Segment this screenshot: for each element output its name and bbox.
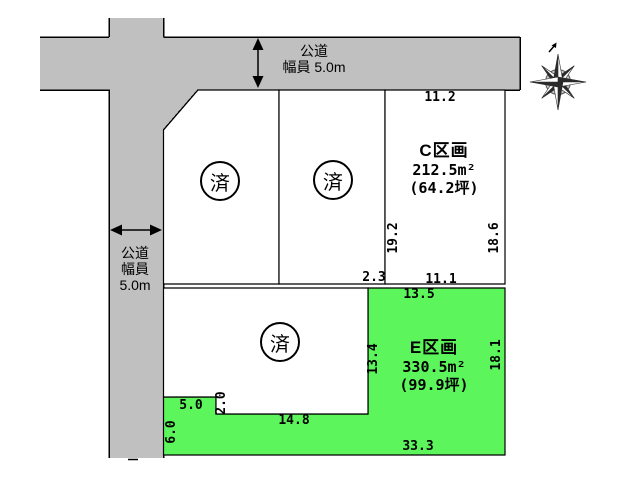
top-road-width: 幅員 5.0m bbox=[268, 59, 360, 75]
dim-e-top: 13.5 bbox=[397, 288, 441, 302]
dim-c-bottom: 11.1 bbox=[419, 273, 463, 287]
plot-c-label: C区画 212.5m² (64.2坪) bbox=[394, 141, 494, 197]
dim-e-left: 13.4 bbox=[367, 337, 381, 381]
dim-e-lower-left: 6.0 bbox=[165, 410, 179, 454]
sold-marker-plot-d: 済 bbox=[260, 322, 300, 362]
dim-d-bottom: 14.8 bbox=[272, 414, 316, 428]
dim-c-right: 18.6 bbox=[488, 216, 502, 260]
plot-c-area-m2: 212.5m² bbox=[394, 161, 494, 179]
dim-c-top: 11.2 bbox=[418, 91, 462, 105]
north-mark bbox=[549, 43, 557, 53]
plot-e-area-m2: 330.5m² bbox=[384, 358, 484, 376]
top-road-label: 公道 幅員 5.0m bbox=[268, 43, 360, 75]
plot-e-label: E区画 330.5m² (99.9坪) bbox=[384, 338, 484, 394]
compass-rose bbox=[530, 43, 586, 111]
plot-e-area-tsubo: (99.9坪) bbox=[384, 376, 484, 394]
dim-c-left: 19.2 bbox=[387, 216, 401, 260]
sold-label: 済 bbox=[210, 167, 230, 196]
left-road-width-caption: 幅員 bbox=[112, 261, 158, 277]
site-plan: 公道 幅員 5.0m 公道 幅員 5.0m 済 済 済 C区画 212.5m² … bbox=[0, 0, 640, 480]
left-road-label: 公道 幅員 5.0m bbox=[112, 245, 158, 293]
dim-notch-height: 2.0 bbox=[215, 381, 229, 425]
sold-label: 済 bbox=[270, 328, 290, 357]
dim-b-bottom: 2.3 bbox=[352, 271, 396, 285]
plot-c-area-tsubo: (64.2坪) bbox=[394, 179, 494, 197]
dim-e-bottom: 33.3 bbox=[396, 440, 440, 454]
plot-e-name: E区画 bbox=[384, 338, 484, 358]
left-road-width-value: 5.0m bbox=[112, 277, 158, 293]
left-road-type: 公道 bbox=[112, 245, 158, 261]
sold-marker-plot-a: 済 bbox=[200, 161, 240, 201]
dim-e-right: 18.1 bbox=[490, 333, 504, 377]
sold-marker-plot-b: 済 bbox=[313, 160, 353, 200]
plot-c-name: C区画 bbox=[394, 141, 494, 161]
sold-label: 済 bbox=[323, 166, 343, 195]
top-road-type: 公道 bbox=[268, 43, 360, 59]
